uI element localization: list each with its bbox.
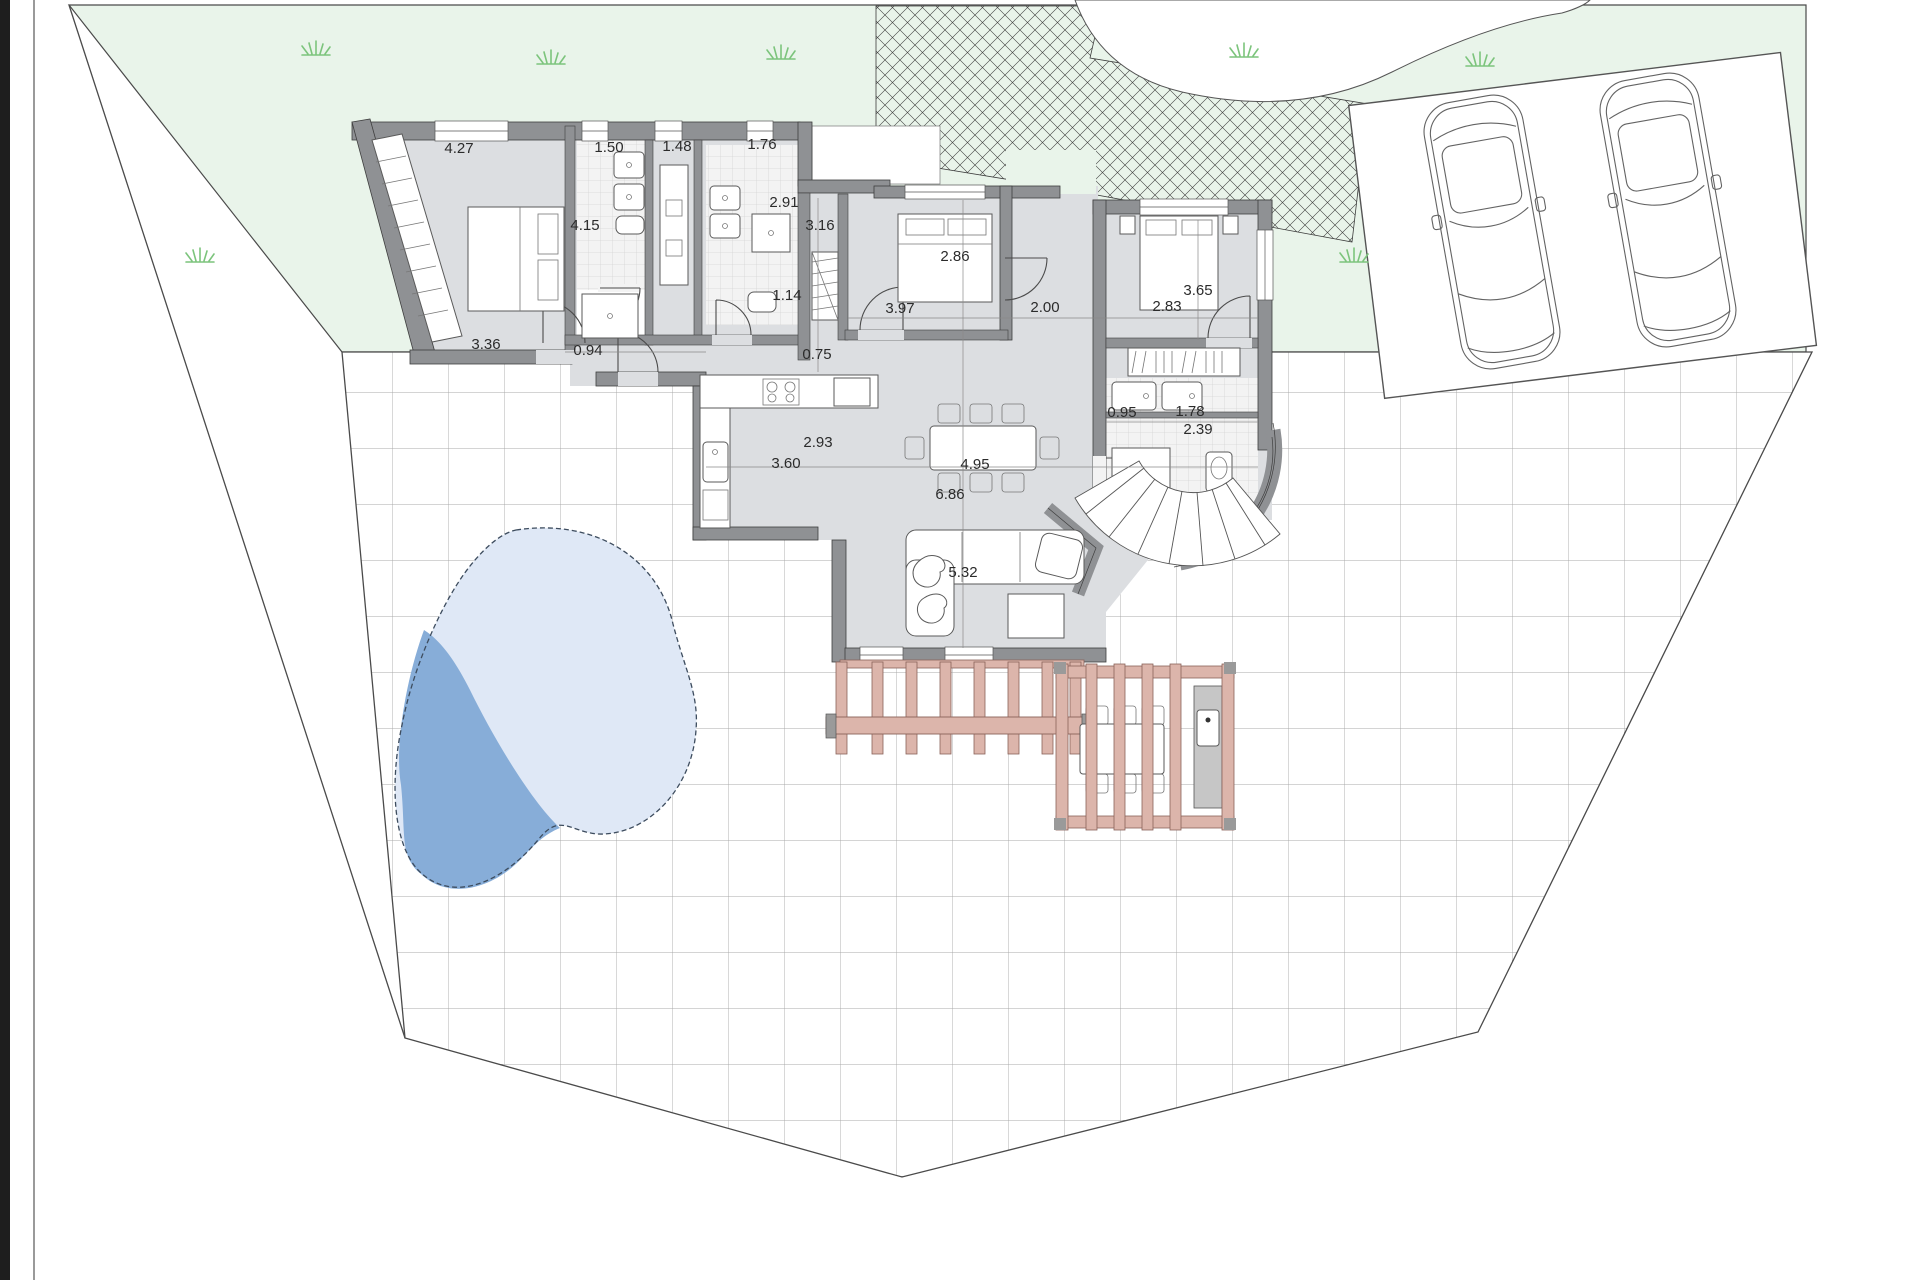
toilet xyxy=(616,216,644,234)
dimension-label: 0.75 xyxy=(802,346,831,363)
dimension-label: 1.50 xyxy=(594,139,623,156)
coffee-table xyxy=(1008,594,1064,638)
dimension-label: 1.78 xyxy=(1175,403,1204,420)
dimension-label: 2.00 xyxy=(1030,299,1059,316)
closet xyxy=(660,165,688,285)
bed xyxy=(468,207,564,311)
dimension-label: 3.16 xyxy=(805,217,834,234)
dimension-label: 0.95 xyxy=(1107,404,1136,421)
dimension-label: 0.94 xyxy=(573,342,602,359)
dimension-label: 2.91 xyxy=(769,194,798,211)
fridge xyxy=(834,378,870,406)
dimension-label: 2.93 xyxy=(803,434,832,451)
dimension-label: 4.27 xyxy=(444,140,473,157)
dimension-label: 2.83 xyxy=(1152,298,1181,315)
shower-tray xyxy=(582,294,638,338)
sink xyxy=(614,184,644,210)
dimension-label: 3.65 xyxy=(1183,282,1212,299)
dimension-label: 6.86 xyxy=(935,486,964,503)
dimension-label: 2.39 xyxy=(1183,421,1212,438)
sink xyxy=(710,186,740,210)
dimension-label: 3.97 xyxy=(885,300,914,317)
dimension-label: 5.32 xyxy=(948,564,977,581)
dimension-label: 1.48 xyxy=(662,138,691,155)
shower xyxy=(752,214,790,252)
floor-plan-page: 4.271.501.481.764.152.913.162.861.143.97… xyxy=(0,0,1920,1280)
nightstand xyxy=(1223,216,1238,234)
outdoor-kitchen xyxy=(1194,686,1222,808)
bbq-sink xyxy=(1197,710,1219,746)
nightstand xyxy=(1120,216,1135,234)
scrollbar-edge[interactable] xyxy=(0,0,10,1280)
dimension-label: 1.14 xyxy=(772,287,801,304)
dimension-label: 4.15 xyxy=(570,217,599,234)
kitchen-sink xyxy=(703,442,728,482)
dimension-label: 3.60 xyxy=(771,455,800,472)
dimension-label: 4.95 xyxy=(960,456,989,473)
page-edge-line xyxy=(33,0,35,1280)
dimension-label: 1.76 xyxy=(747,136,776,153)
floor-plan-canvas: 4.271.501.481.764.152.913.162.861.143.97… xyxy=(0,0,1920,1280)
window-chrome xyxy=(0,0,35,1280)
dimension-label: 3.36 xyxy=(471,336,500,353)
carport xyxy=(1349,53,1817,399)
sink xyxy=(710,214,740,238)
back-terrace-niche xyxy=(812,126,940,184)
dimension-label: 2.86 xyxy=(940,248,969,265)
